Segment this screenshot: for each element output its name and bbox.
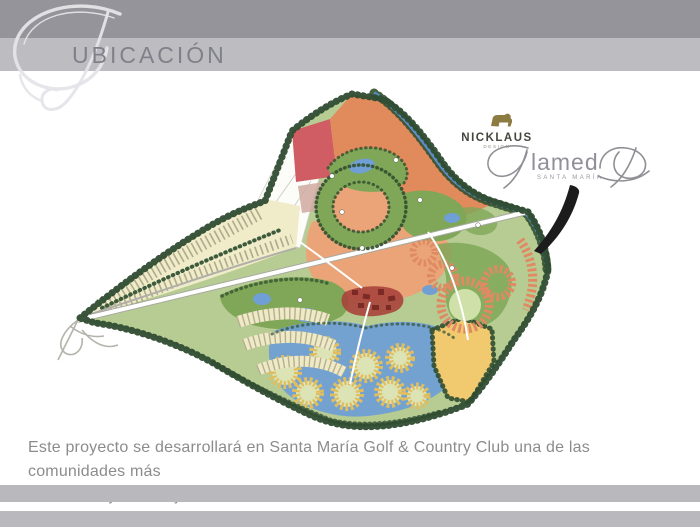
location-arrow (534, 185, 579, 254)
master-plan-map: NICKLAUS DESIGN lamed SANTA MARÍA (40, 76, 670, 447)
lot-cluster (296, 381, 320, 405)
town-center (341, 286, 403, 316)
nicklaus-wordmark: NICKLAUS (461, 132, 532, 144)
lot-cluster (407, 386, 427, 406)
lot-cluster (334, 381, 360, 407)
caption-line-1: Este proyecto se desarrollará en Santa M… (28, 439, 590, 480)
nicklaus-logo: NICKLAUS DESIGN (461, 114, 532, 149)
slide: UBICACIÓN (0, 0, 700, 527)
golden-bear-icon (491, 114, 512, 127)
alameda-script-a-left-icon (488, 146, 528, 188)
lot-cluster (389, 347, 411, 369)
alameda-wordmark: lamed (531, 149, 599, 175)
footer-bar-upper (0, 485, 700, 502)
site-plan-svg: NICKLAUS DESIGN lamed SANTA MARÍA (40, 76, 670, 442)
alameda-subtitle: SANTA MARÍA (537, 174, 603, 181)
alameda-script-a-right-icon (598, 148, 649, 187)
page-title: UBICACIÓN (72, 40, 227, 70)
lot-cluster (378, 380, 402, 404)
footer-bar-lower (0, 511, 700, 527)
